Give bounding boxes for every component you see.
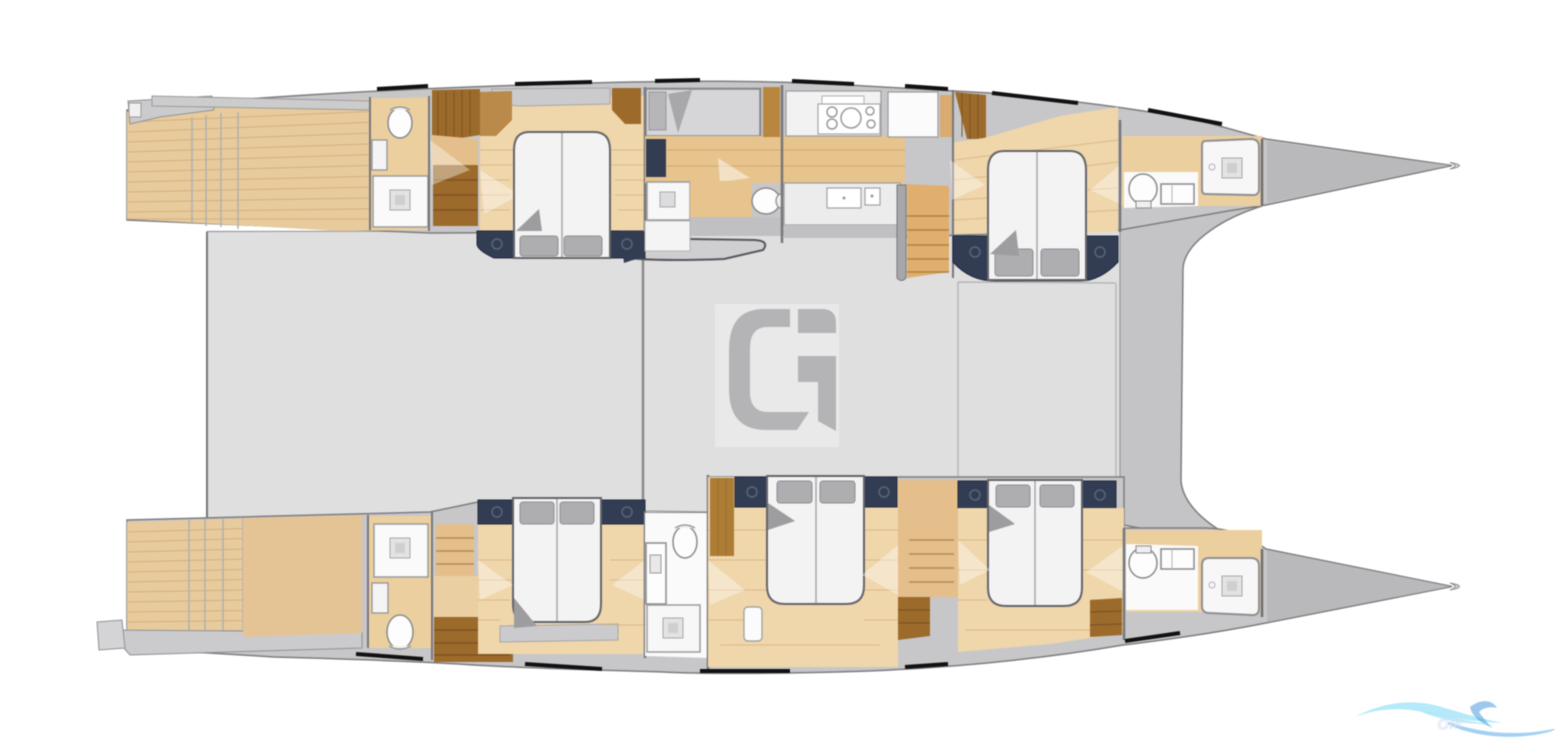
svg-text:OM: OM	[1436, 714, 1463, 734]
